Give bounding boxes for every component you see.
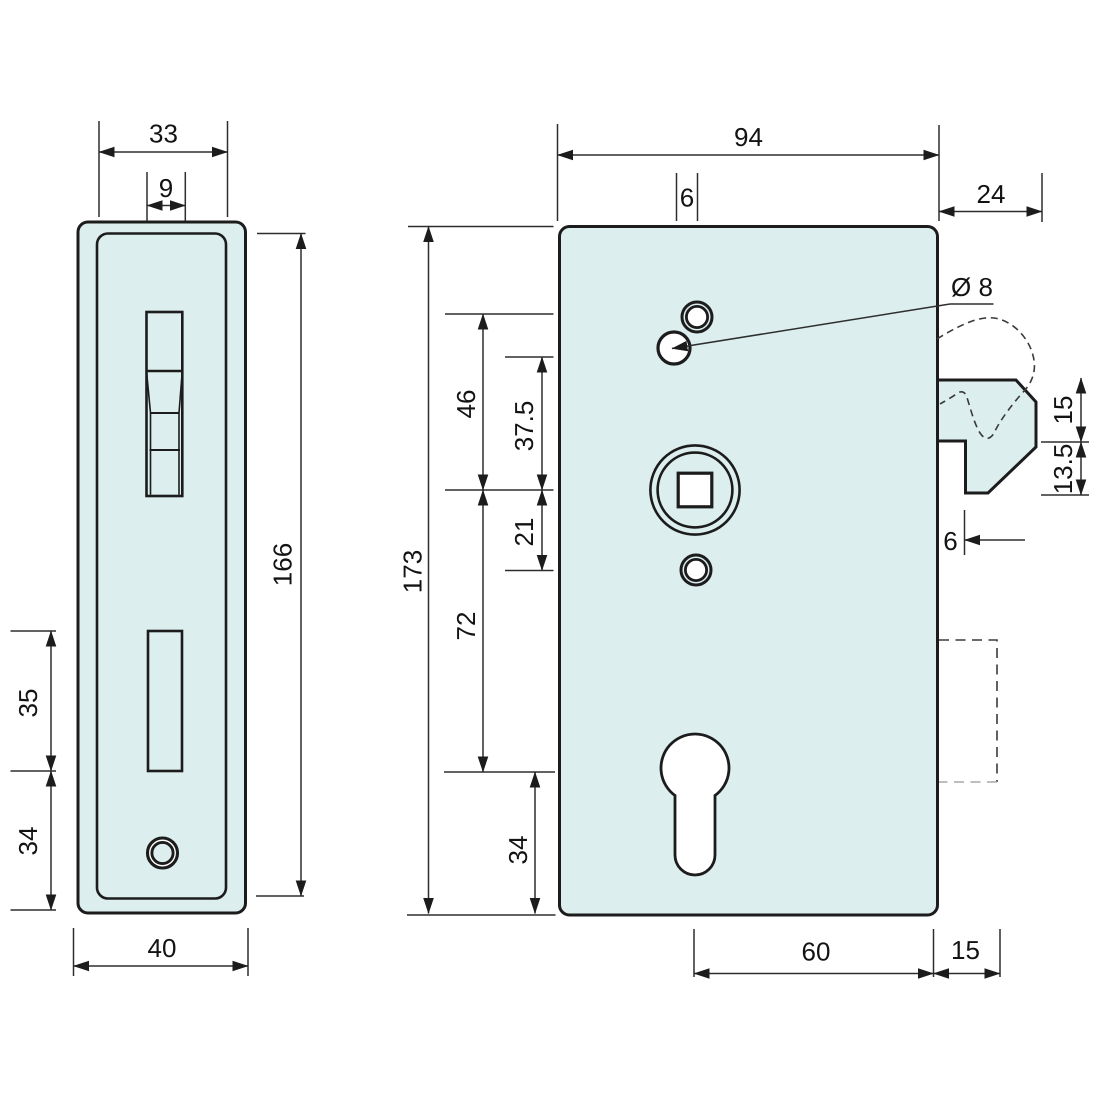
svg-text:173: 173 (398, 550, 428, 593)
svg-text:166: 166 (268, 543, 298, 586)
svg-text:Ø 8: Ø 8 (951, 272, 993, 302)
svg-text:15: 15 (1048, 396, 1078, 425)
svg-text:46: 46 (451, 390, 481, 419)
svg-text:9: 9 (159, 173, 173, 203)
svg-text:24: 24 (977, 179, 1006, 209)
svg-text:33: 33 (149, 119, 178, 149)
svg-text:15: 15 (951, 935, 980, 965)
svg-text:35: 35 (13, 689, 43, 718)
svg-text:72: 72 (451, 612, 481, 641)
svg-text:34: 34 (13, 827, 43, 856)
svg-text:21: 21 (509, 518, 539, 547)
svg-text:37.5: 37.5 (509, 401, 539, 452)
svg-text:34: 34 (503, 836, 533, 865)
svg-text:94: 94 (734, 122, 763, 152)
svg-text:40: 40 (148, 933, 177, 963)
svg-text:60: 60 (802, 937, 831, 967)
svg-text:13.5: 13.5 (1048, 444, 1078, 495)
svg-text:6: 6 (680, 183, 694, 213)
svg-text:6: 6 (943, 526, 957, 556)
